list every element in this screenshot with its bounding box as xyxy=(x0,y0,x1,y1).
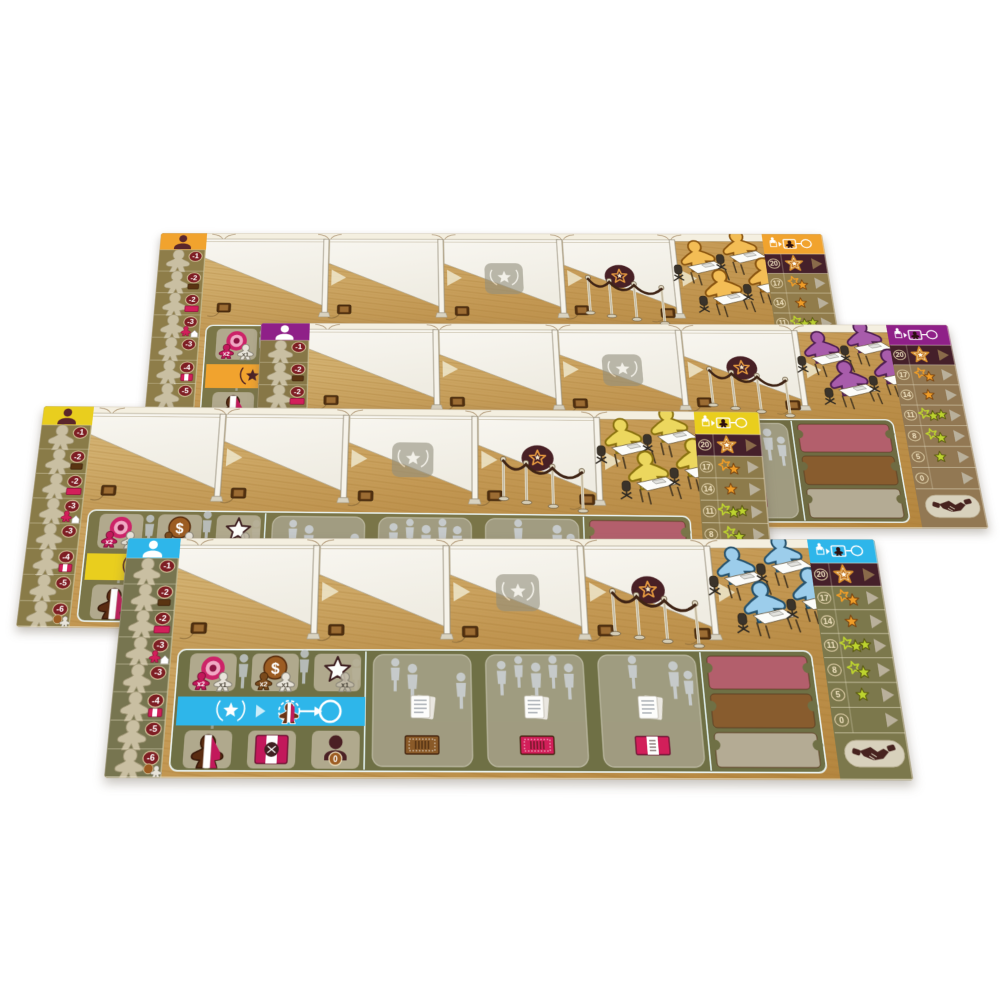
svg-text:-6: -6 xyxy=(147,752,156,763)
svg-text:-4: -4 xyxy=(62,553,70,562)
svg-text:-2: -2 xyxy=(74,453,82,462)
svg-text:14: 14 xyxy=(823,618,833,626)
svg-text:-3: -3 xyxy=(185,341,193,349)
svg-text:17: 17 xyxy=(819,595,829,603)
svg-text:-3: -3 xyxy=(156,640,164,650)
svg-text:-6: -6 xyxy=(56,605,64,614)
svg-text:x2: x2 xyxy=(259,682,268,689)
svg-text:x2: x2 xyxy=(197,682,206,689)
svg-text:-2: -2 xyxy=(159,613,167,623)
svg-text:0: 0 xyxy=(333,756,338,765)
svg-text:-5: -5 xyxy=(182,388,190,396)
svg-text:17: 17 xyxy=(702,464,711,472)
svg-text:-1: -1 xyxy=(163,561,171,571)
svg-text:11: 11 xyxy=(705,508,714,516)
svg-text:-1: -1 xyxy=(192,253,199,260)
svg-text:8: 8 xyxy=(709,531,714,539)
svg-text:-4: -4 xyxy=(183,364,191,372)
svg-text:14: 14 xyxy=(902,392,912,399)
svg-text:-2: -2 xyxy=(295,367,302,374)
svg-text:20: 20 xyxy=(895,352,905,359)
svg-text:-2: -2 xyxy=(161,587,169,597)
svg-text:-5: -5 xyxy=(149,723,158,734)
svg-text:x2: x2 xyxy=(223,351,230,358)
svg-text:17: 17 xyxy=(899,372,909,379)
svg-text:20: 20 xyxy=(700,442,709,450)
svg-text:-2: -2 xyxy=(190,275,197,282)
svg-text:17: 17 xyxy=(772,280,782,287)
svg-text:-2: -2 xyxy=(71,477,79,486)
svg-text:x1: x1 xyxy=(341,683,350,690)
svg-text:14: 14 xyxy=(775,300,785,307)
svg-text:-3: -3 xyxy=(65,527,73,536)
svg-text:-3: -3 xyxy=(68,502,76,511)
svg-text:-3: -3 xyxy=(154,667,163,678)
svg-text:x1: x1 xyxy=(242,352,249,359)
svg-text:11: 11 xyxy=(906,412,916,419)
svg-text:20: 20 xyxy=(816,572,826,580)
svg-text:-1: -1 xyxy=(295,344,302,351)
svg-text:20: 20 xyxy=(770,261,780,268)
svg-text:-5: -5 xyxy=(59,579,67,588)
svg-text:-3: -3 xyxy=(187,319,195,326)
svg-text:11: 11 xyxy=(826,642,836,650)
svg-text:-2: -2 xyxy=(294,389,301,396)
svg-text:x1: x1 xyxy=(281,683,290,690)
svg-text:$: $ xyxy=(271,660,281,678)
svg-text:-2: -2 xyxy=(189,297,196,304)
svg-text:x1: x1 xyxy=(219,682,228,689)
svg-text:14: 14 xyxy=(704,486,713,494)
svg-text:-1: -1 xyxy=(76,429,84,437)
